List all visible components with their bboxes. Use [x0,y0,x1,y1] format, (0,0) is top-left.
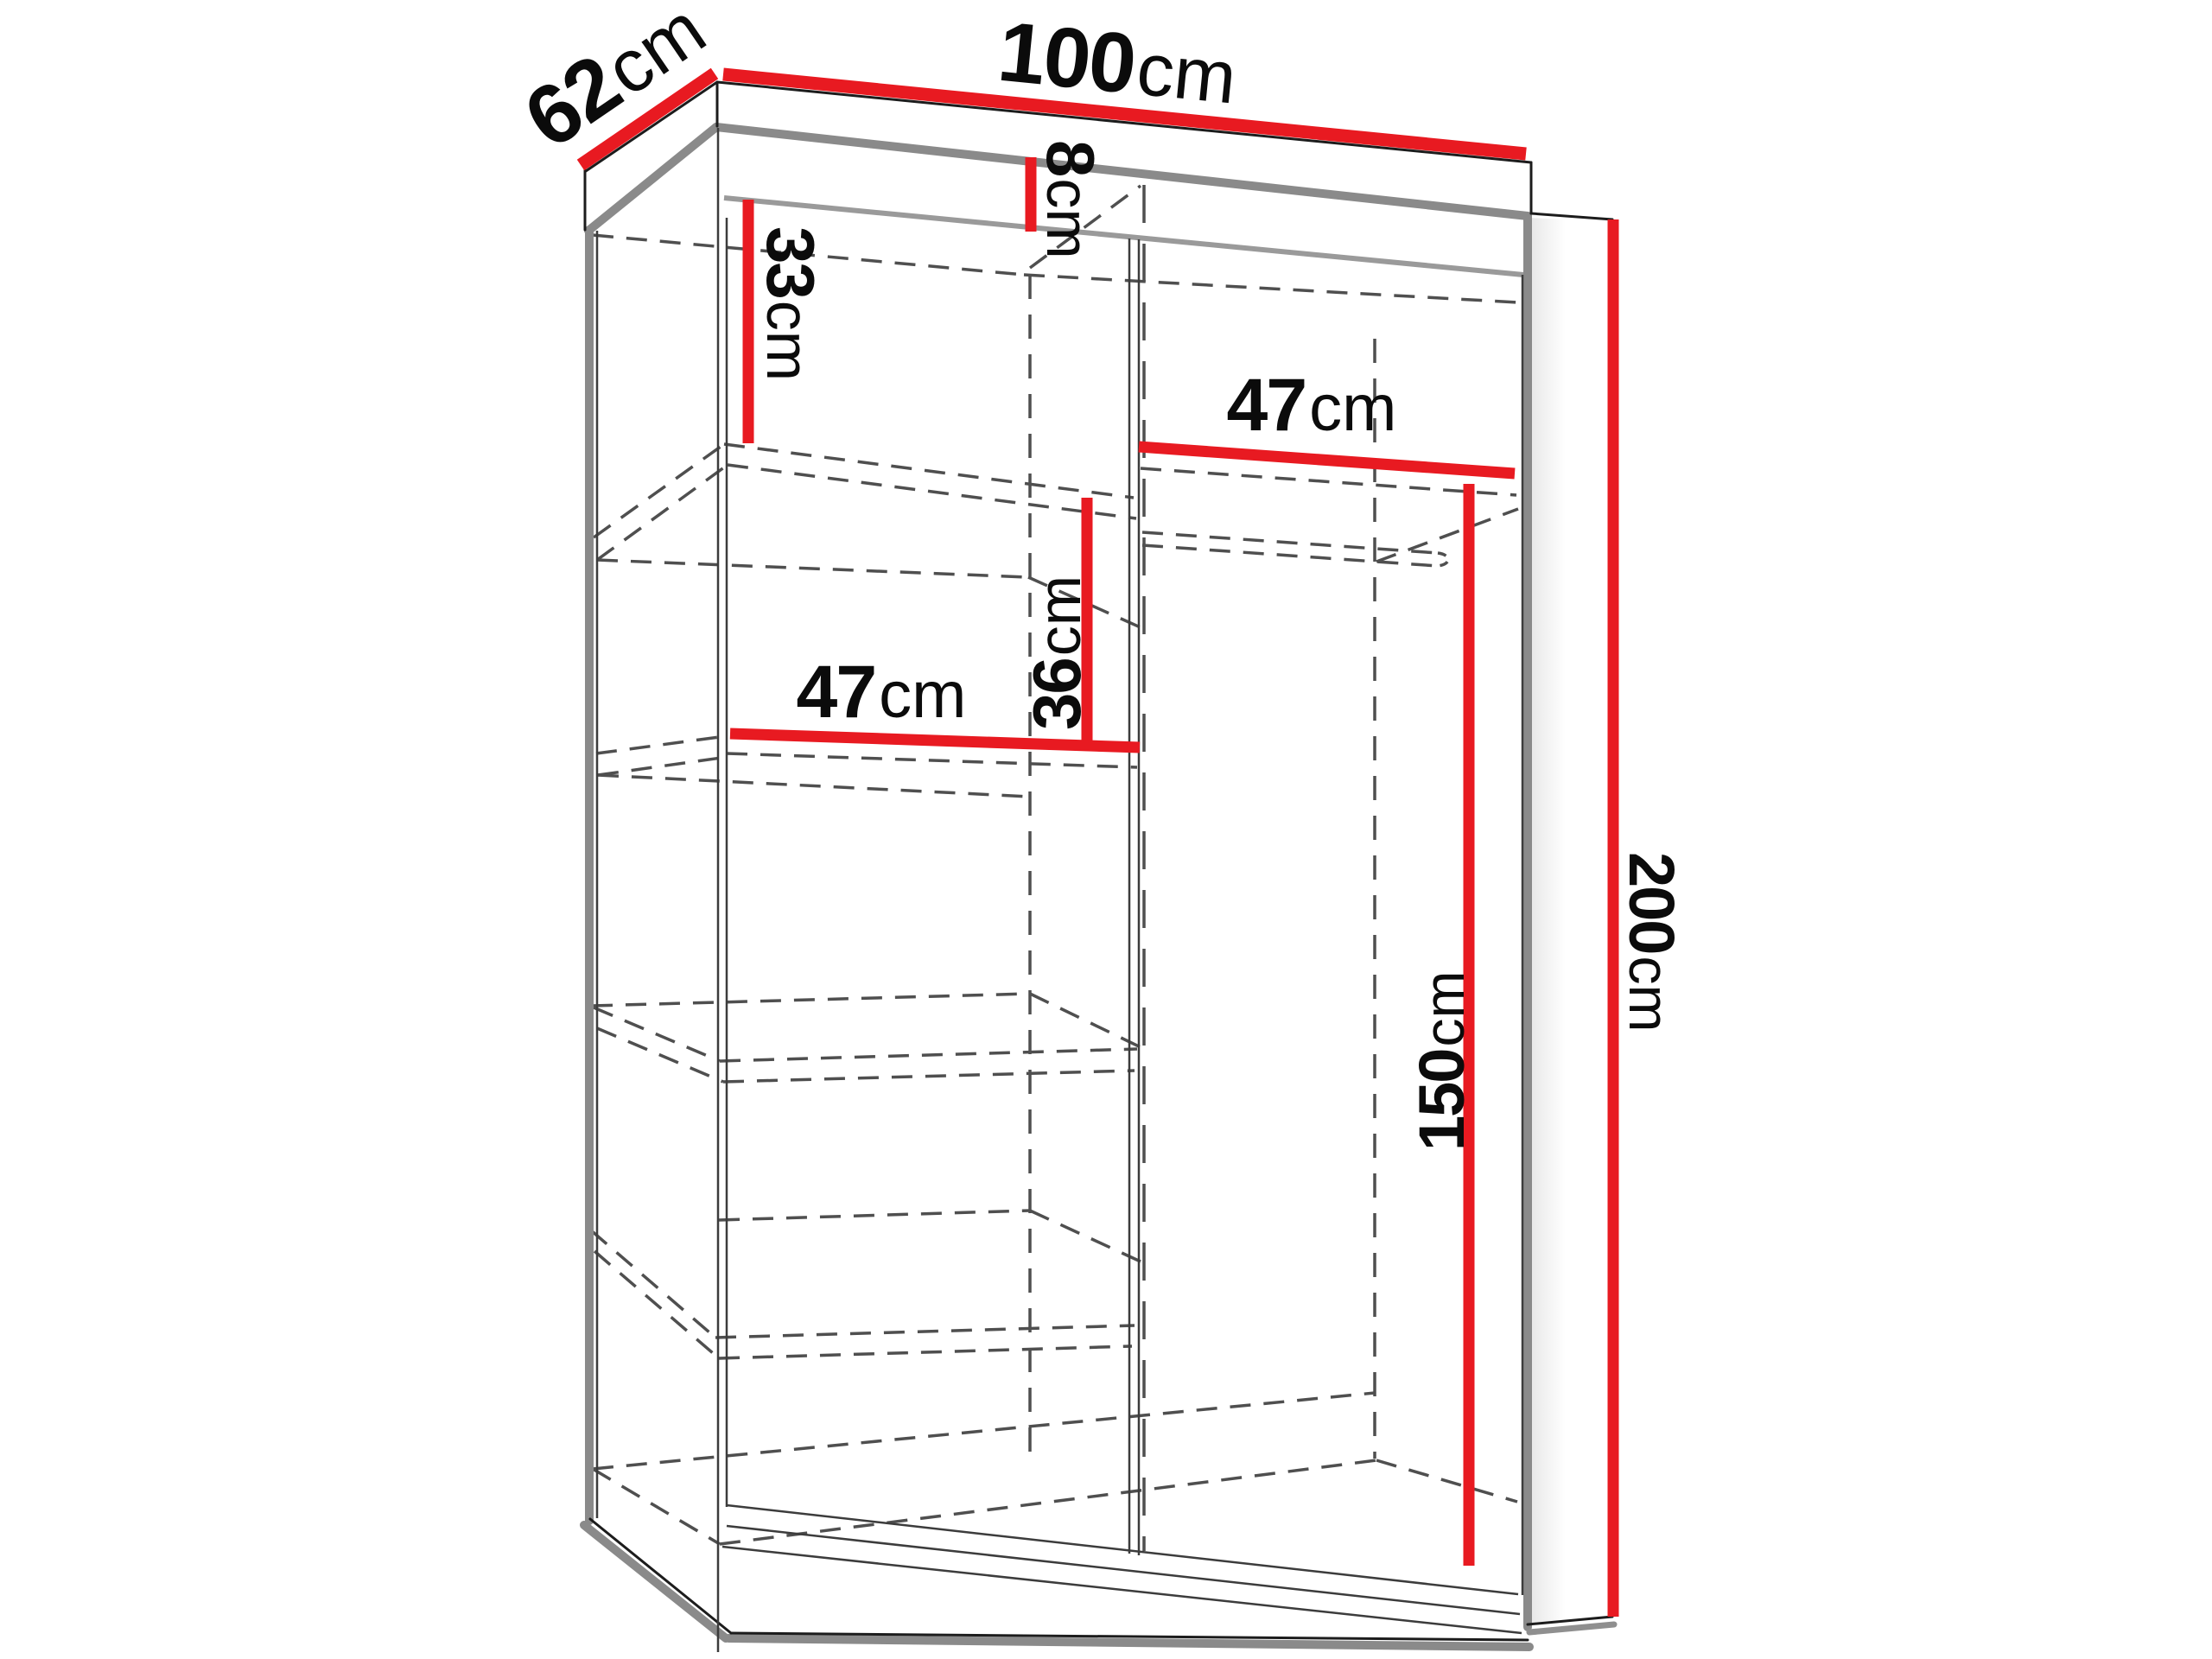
dim-line-right-shelf-47 [1139,447,1515,474]
left-shelf-4 [591,1211,1141,1358]
dim-label-upper-compartment: 33cm [753,226,829,381]
wardrobe-outline [584,82,1614,1652]
door-track [722,1505,1522,1633]
dimension-labels: 62cm 100cm 8cm 33cm 47cm 36cm 47cm 150cm… [507,0,1688,1151]
wardrobe-dimension-diagram: 62cm 100cm 8cm 33cm 47cm 36cm 47cm 150cm… [0,0,2212,1659]
dim-label-height: 200cm [1616,852,1688,1032]
dim-label-shelf-spacing: 36cm [1019,575,1095,730]
dim-line-left-shelf-47 [730,734,1140,747]
dim-label-right-shelf: 47cm [1227,364,1397,447]
right-side-panel-face [1528,218,1612,1625]
hanging-rail [1142,532,1448,566]
right-shelf-hidden-edges [1141,468,1518,562]
dim-label-top-gap: 8cm [1033,140,1109,259]
dimension-lines [581,73,1613,1617]
diagram-canvas: 62cm 100cm 8cm 33cm 47cm 36cm 47cm 150cm… [0,0,2212,1659]
left-shelf-3 [592,994,1141,1082]
cabinet-floor-hidden-edges [593,1393,1517,1544]
dim-label-hanging-space: 150cm [1406,971,1478,1151]
center-divider [1129,238,1139,1555]
dim-label-left-shelf: 47cm [797,651,967,734]
